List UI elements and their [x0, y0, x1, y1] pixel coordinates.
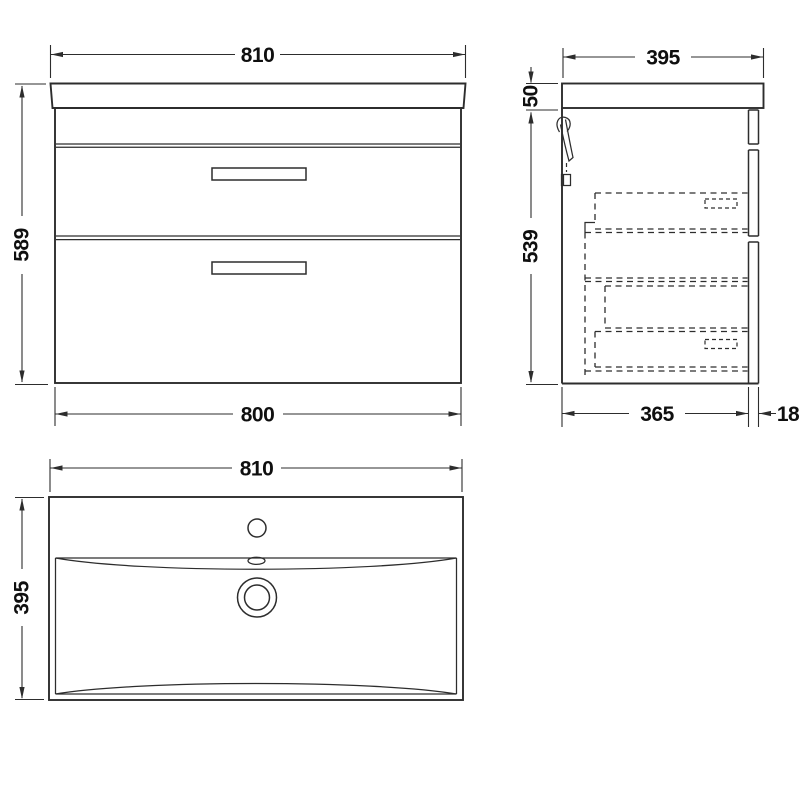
front-cabinet-body — [55, 108, 461, 383]
arrow-up — [19, 86, 24, 98]
hidden-drawer-internals — [585, 193, 748, 378]
mounting-bracket-icon — [557, 117, 573, 185]
basin-outer-rim — [49, 497, 463, 700]
arrow-left — [564, 54, 576, 59]
side-dim-cabinet-height: 539 — [520, 112, 559, 385]
arrow-left — [563, 411, 575, 416]
arrow-right — [450, 465, 462, 470]
front-worktop — [51, 84, 466, 109]
dim-label-front-bottom-width: 800 — [241, 404, 275, 427]
technical-drawing-sheet: 810 589 800 — [0, 0, 800, 800]
dim-label-plan-depth: 395 — [11, 580, 34, 614]
arrow-left — [759, 411, 771, 416]
drawer-clip-1 — [705, 199, 737, 208]
bracket-hook — [557, 117, 573, 161]
waste-outer-ring — [238, 578, 277, 617]
dim-label-worktop-thickness: 50 — [520, 85, 543, 107]
side-drawer-front-edges — [749, 110, 759, 384]
plan-dim-depth: 395 — [11, 498, 45, 700]
basin-bowl-slope-front — [56, 684, 457, 695]
plan-view: 810 395 — [11, 458, 464, 701]
front-drawer-handle-1 — [212, 168, 306, 180]
arrow-right — [453, 52, 465, 57]
dim-label-front-top-width: 810 — [241, 44, 275, 67]
arrow-up — [19, 499, 24, 511]
arrow-down — [528, 72, 533, 84]
side-dim-cabinet-depth: 365 — [562, 387, 749, 427]
front-dim-top-width: 810 — [51, 44, 466, 78]
dim-label-side-depth: 395 — [646, 47, 680, 70]
tap-hole — [248, 519, 266, 537]
dim-label-cabinet-depth: 365 — [640, 403, 674, 426]
waste-inner-ring — [245, 585, 270, 610]
drawer-clip-2 — [705, 340, 737, 349]
arrow-right — [449, 411, 461, 416]
drawer-box-hidden-lines — [585, 193, 748, 378]
arrow-right — [751, 54, 763, 59]
plan-dim-width: 810 — [50, 458, 462, 493]
arrow-down — [19, 687, 24, 699]
dim-label-plan-width: 810 — [240, 458, 274, 481]
basin-bowl-slope-back — [56, 558, 457, 569]
dim-label-cabinet-height: 539 — [520, 230, 543, 264]
front-view: 810 589 800 — [11, 44, 466, 427]
front-dim-height: 589 — [11, 84, 49, 385]
side-view: 395 50 539 365 — [520, 47, 800, 428]
dim-label-front-height: 589 — [11, 228, 34, 262]
front-drawer-divider-lines — [56, 236, 460, 240]
arrow-left — [51, 52, 63, 57]
arrow-left — [56, 411, 68, 416]
side-dim-top-depth: 395 — [563, 47, 764, 79]
arrow-left — [51, 465, 63, 470]
side-dim-front-panel: 18 — [759, 387, 800, 427]
runner-step — [585, 223, 595, 233]
side-dim-worktop: 50 — [520, 67, 559, 110]
side-worktop — [562, 84, 764, 109]
arrow-up — [528, 112, 533, 124]
front-dim-bottom-width: 800 — [55, 387, 461, 427]
arrow-right — [736, 411, 748, 416]
front-drawer-handle-2 — [212, 262, 306, 274]
arrow-down — [528, 371, 533, 383]
front-top-rail-lines — [56, 144, 460, 147]
side-cabinet-back-and-bottom — [562, 108, 759, 384]
vanity-technical-drawing: 810 589 800 — [0, 0, 800, 800]
dim-label-front-panel-thickness: 18 — [777, 403, 800, 426]
arrow-down — [19, 371, 24, 383]
